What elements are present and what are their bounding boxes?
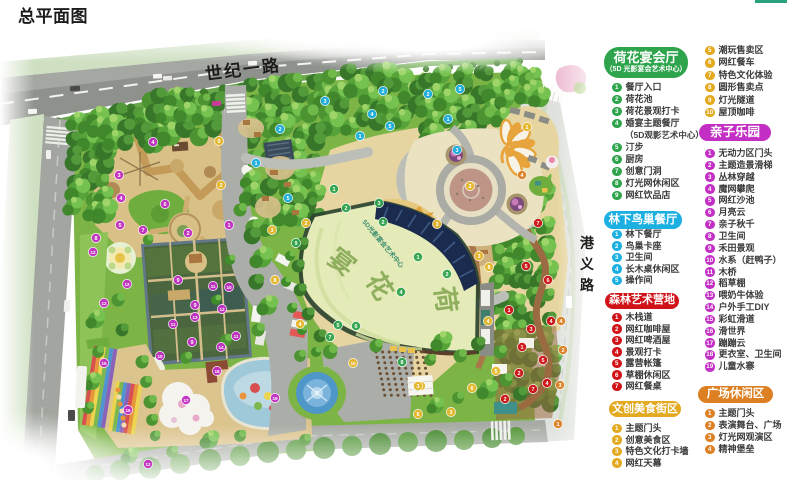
- svg-text:3: 3: [435, 222, 438, 228]
- svg-text:港: 港: [580, 235, 595, 251]
- svg-text:2: 2: [426, 92, 429, 98]
- svg-text:14: 14: [218, 345, 224, 350]
- svg-text:9: 9: [294, 241, 297, 247]
- svg-text:8: 8: [273, 278, 276, 284]
- svg-text:3: 3: [558, 383, 561, 389]
- svg-text:1: 1: [332, 187, 335, 193]
- svg-text:2: 2: [381, 89, 384, 95]
- svg-text:3: 3: [323, 99, 326, 105]
- svg-text:7: 7: [536, 221, 539, 227]
- svg-text:11: 11: [211, 284, 216, 289]
- svg-text:10: 10: [350, 361, 356, 366]
- svg-text:1: 1: [254, 161, 257, 167]
- svg-text:13: 13: [192, 315, 198, 320]
- svg-text:8: 8: [400, 360, 403, 366]
- svg-text:6: 6: [416, 412, 419, 418]
- svg-text:1: 1: [227, 223, 230, 229]
- svg-text:7: 7: [141, 228, 144, 234]
- svg-text:3: 3: [117, 173, 120, 179]
- svg-text:8: 8: [94, 236, 97, 242]
- svg-text:7: 7: [531, 387, 534, 393]
- svg-text:5: 5: [541, 358, 544, 364]
- svg-text:1: 1: [556, 422, 559, 428]
- svg-text:3: 3: [449, 410, 452, 416]
- svg-text:9: 9: [176, 278, 179, 284]
- svg-text:3: 3: [455, 148, 458, 154]
- svg-text:12: 12: [145, 462, 151, 467]
- svg-text:5: 5: [494, 369, 497, 375]
- svg-text:2: 2: [278, 127, 281, 133]
- svg-text:2: 2: [304, 221, 307, 227]
- svg-text:15: 15: [101, 361, 107, 366]
- svg-text:9: 9: [217, 139, 220, 145]
- svg-text:1: 1: [416, 255, 419, 261]
- svg-text:2: 2: [468, 184, 471, 190]
- svg-text:2: 2: [186, 231, 189, 237]
- svg-text:12: 12: [90, 250, 96, 255]
- svg-text:1: 1: [507, 308, 510, 314]
- svg-text:6: 6: [470, 386, 473, 392]
- svg-text:16: 16: [125, 408, 131, 413]
- svg-text:9: 9: [190, 340, 193, 346]
- svg-text:3: 3: [270, 228, 273, 234]
- svg-text:18: 18: [214, 369, 220, 374]
- svg-text:5: 5: [336, 323, 339, 329]
- svg-text:5: 5: [524, 264, 527, 270]
- svg-text:6: 6: [354, 324, 357, 330]
- svg-text:1: 1: [525, 125, 528, 131]
- svg-text:荷: 荷: [429, 285, 462, 315]
- svg-text:2: 2: [344, 206, 347, 212]
- svg-text:12: 12: [124, 282, 130, 287]
- svg-text:1: 1: [358, 134, 361, 140]
- svg-text:10: 10: [157, 354, 163, 359]
- svg-text:路: 路: [580, 277, 595, 293]
- svg-text:6: 6: [163, 202, 166, 208]
- svg-text:12: 12: [219, 307, 225, 312]
- svg-text:2: 2: [561, 348, 564, 354]
- svg-text:5: 5: [388, 124, 391, 130]
- svg-text:10: 10: [226, 285, 232, 290]
- svg-text:1: 1: [446, 117, 449, 123]
- svg-text:义: 义: [580, 256, 594, 272]
- svg-text:12: 12: [101, 301, 107, 306]
- svg-text:5: 5: [286, 196, 289, 202]
- svg-text:2: 2: [219, 183, 222, 189]
- svg-text:3: 3: [377, 201, 380, 207]
- svg-text:5: 5: [458, 87, 461, 93]
- svg-text:8: 8: [487, 265, 490, 271]
- svg-text:2: 2: [517, 371, 520, 377]
- svg-text:3: 3: [477, 254, 480, 260]
- svg-text:3: 3: [416, 384, 419, 390]
- svg-text:1: 1: [520, 345, 523, 351]
- svg-text:17: 17: [183, 398, 189, 403]
- svg-text:3: 3: [529, 327, 532, 333]
- svg-text:19: 19: [272, 396, 278, 401]
- svg-text:6: 6: [546, 278, 549, 284]
- svg-text:2: 2: [503, 397, 506, 403]
- svg-text:2: 2: [381, 220, 384, 226]
- svg-text:7: 7: [328, 335, 331, 341]
- svg-text:2: 2: [445, 272, 448, 278]
- svg-text:11: 11: [171, 322, 176, 327]
- svg-text:9: 9: [193, 303, 196, 309]
- svg-text:5: 5: [118, 223, 121, 229]
- svg-text:11: 11: [234, 334, 239, 339]
